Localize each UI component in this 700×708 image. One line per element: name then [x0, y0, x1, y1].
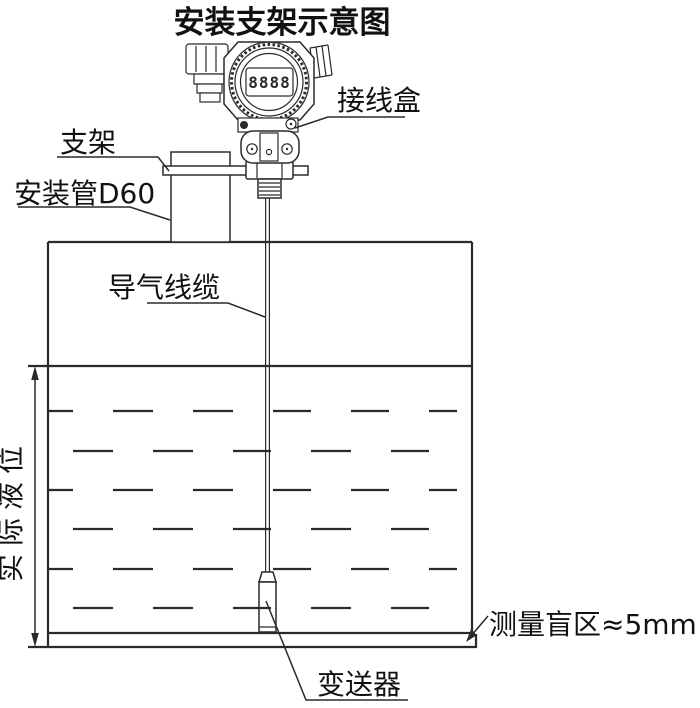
dimension-arrow-up-icon	[31, 366, 39, 380]
gland-slat-3	[200, 93, 220, 102]
page-title: 安装支架示意图	[174, 5, 391, 41]
diagram-canvas: 8888 安装支架示意图 接线盒 支架 安装管D60 导气线缆 实际液位 测量盲	[0, 0, 700, 708]
display-screen: 8888	[246, 68, 293, 96]
cable-gland	[186, 44, 228, 102]
installation-diagram-svg: 8888 安装支架示意图 接线盒 支架 安装管D60 导气线缆 实际液位 测量盲	[0, 0, 700, 708]
junction-box-leader	[295, 117, 405, 128]
label-junction-box: 接线盒	[337, 84, 421, 117]
neck-bolt-left-dot	[251, 148, 253, 150]
label-blind-zone: 测量盲区≈5mm	[489, 608, 697, 641]
probe-cone	[259, 572, 276, 582]
label-bracket: 支架	[60, 126, 116, 159]
air-guide-cable	[266, 198, 270, 572]
transmitter-head: 8888	[186, 42, 332, 163]
dimension-arrow-down-icon	[31, 633, 39, 647]
liquid-dashes-odd-rows	[48, 411, 457, 569]
air-cable-leader	[147, 303, 265, 317]
neck-bolt-right-dot	[286, 148, 288, 150]
screw-right-dot	[290, 123, 293, 126]
display-digits: 8888	[248, 73, 291, 92]
label-transmitter: 变送器	[317, 668, 401, 701]
tank-outer-bottom	[28, 634, 476, 647]
level-dimension	[31, 366, 39, 647]
gland-slat-2	[197, 84, 222, 93]
screw-left-icon	[240, 121, 248, 129]
bracket-leader	[57, 157, 169, 171]
liquid-dashes-even-rows	[73, 451, 429, 608]
tank	[28, 242, 476, 647]
label-mounting-pipe: 安装管D60	[14, 177, 155, 210]
liquid-hatching	[48, 411, 457, 608]
neck-flange	[241, 131, 299, 163]
probe	[259, 572, 276, 632]
neck-center-dot	[266, 149, 271, 154]
mounting-assembly	[163, 152, 308, 242]
label-actual-level: 实际液位	[0, 438, 27, 582]
gland-nut	[186, 44, 228, 74]
label-air-cable: 导气线缆	[108, 271, 220, 304]
gland-slat-1	[194, 74, 224, 84]
